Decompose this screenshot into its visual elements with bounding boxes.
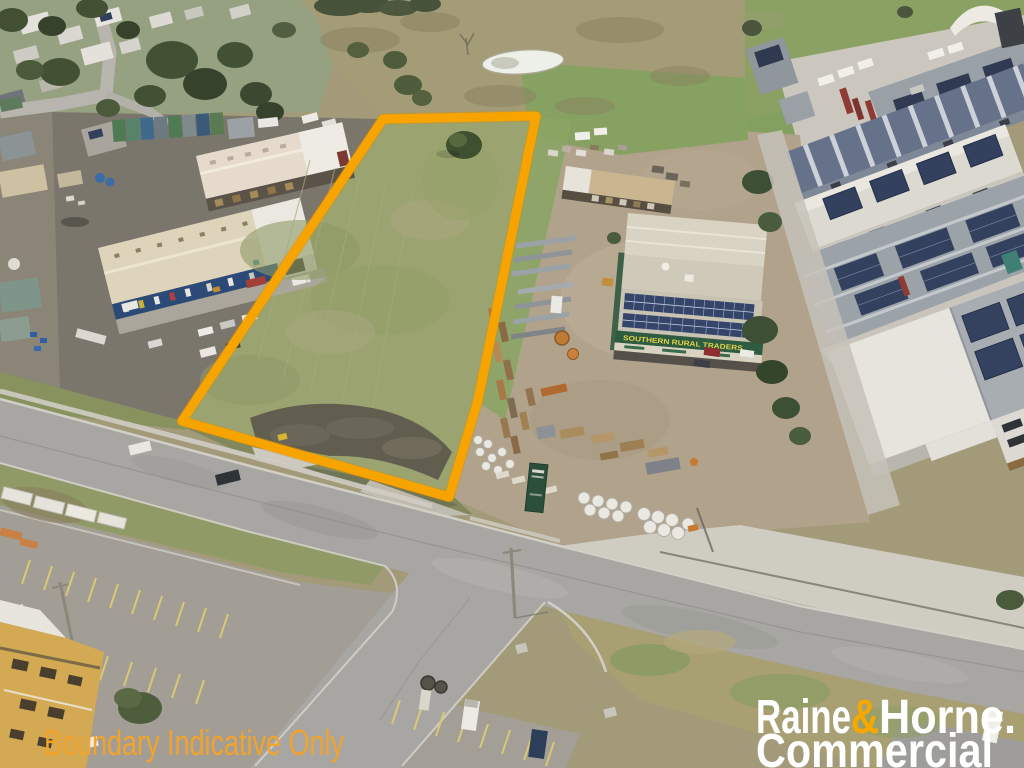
disclaimer-text: Boundary Indicative Only xyxy=(44,722,344,763)
brand-commercial: Commercial xyxy=(756,725,993,768)
aerial-photo: SOUTHERN RURAL TRADERS xyxy=(0,0,1024,768)
brand-logo: Raine&Horne. Commercial xyxy=(756,691,1016,768)
southern-rural-traders-building: SOUTHERN RURAL TRADERS xyxy=(609,212,773,372)
